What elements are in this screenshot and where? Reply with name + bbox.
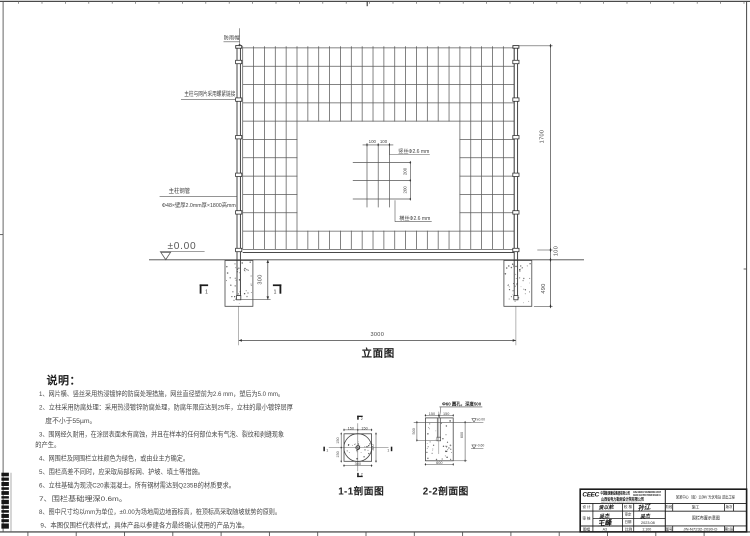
svg-text:1700: 1700 bbox=[540, 130, 546, 144]
svg-text:±0.00: ±0.00 bbox=[168, 241, 197, 252]
svg-text:150: 150 bbox=[429, 412, 435, 416]
svg-text:主柱与网片采用螺紧链接: 主柱与网片采用螺紧链接 bbox=[184, 90, 235, 98]
svg-text:4、网围栏及网围栏立柱颜色为绿色，或由业主方确定。: 4、网围栏及网围栏立柱颜色为绿色，或由业主方确定。 bbox=[39, 454, 189, 463]
svg-text:300: 300 bbox=[371, 444, 375, 450]
svg-text:中国能源建设集团有限公司: 中国能源建设集团有限公司 bbox=[601, 490, 631, 496]
svg-text:主柱钢管: 主柱钢管 bbox=[169, 187, 191, 195]
svg-text:某某中心（南）110kV 光伏电站 送出工程: 某某中心（南）110kV 光伏电站 送出工程 bbox=[676, 493, 735, 499]
svg-text:黄以航: 黄以航 bbox=[598, 503, 614, 511]
svg-text:审 核: 审 核 bbox=[582, 515, 591, 520]
svg-text:立面图: 立面图 bbox=[362, 347, 395, 360]
svg-text:7、围栏基础埋深0.6m。: 7、围栏基础埋深0.6m。 bbox=[39, 494, 127, 503]
svg-text:CEEC: CEEC bbox=[582, 491, 599, 498]
svg-text:第1张: 第1张 bbox=[725, 527, 734, 532]
svg-text:±0.00: ±0.00 bbox=[477, 417, 486, 421]
svg-text:竖丝Φ2.6 mm: 竖丝Φ2.6 mm bbox=[398, 147, 429, 155]
svg-text:图号: 图号 bbox=[666, 527, 673, 532]
svg-text:150: 150 bbox=[361, 426, 367, 430]
svg-text:3、围网经久耐用，在涂层表面未有腐蚀，并且在样本的任何部位未: 3、围网经久耐用，在涂层表面未有腐蚀，并且在样本的任何部位未有气泡、裂纹和剥缝现… bbox=[39, 429, 284, 438]
svg-text:1: 1 bbox=[387, 448, 389, 452]
svg-text:2、立柱采用防腐处理：采用热浸镀锌防腐处理，防腐年限应达到2: 2、立柱采用防腐处理：采用热浸镀锌防腐处理，防腐年限应达到25年，立柱的最小镀锌… bbox=[39, 403, 293, 412]
svg-text:A3: A3 bbox=[603, 528, 607, 532]
svg-text:200: 200 bbox=[403, 167, 408, 175]
svg-text:1: 1 bbox=[205, 290, 208, 296]
svg-text:200: 200 bbox=[403, 186, 408, 194]
svg-text:2: 2 bbox=[361, 473, 363, 477]
svg-text:600: 600 bbox=[460, 432, 464, 438]
svg-text:审定: 审定 bbox=[625, 512, 632, 517]
svg-text:1-1剖面图: 1-1剖面图 bbox=[338, 484, 384, 497]
svg-text:8、图中尺寸均以mm为单位，±0.00为场地周边地面标高，桩: 8、图中尺寸均以mm为单位，±0.00为场地周边地面标高，桩顶标高采取随坡就势的… bbox=[39, 507, 281, 516]
svg-text:阶段: 阶段 bbox=[666, 504, 673, 509]
svg-text:150: 150 bbox=[443, 412, 449, 416]
svg-text:490: 490 bbox=[541, 283, 547, 293]
svg-text:吴杰: 吴杰 bbox=[639, 512, 652, 520]
svg-text:度不小于55µm。: 度不小于55µm。 bbox=[45, 416, 96, 425]
svg-text:1、网片横、竖丝采用热浸镀锌的防腐处理措施，网丝直径塑前为2: 1、网片横、竖丝采用热浸镀锌的防腐处理措施，网丝直径塑前为2.6 mm，塑后为5… bbox=[39, 389, 284, 398]
svg-text:说明：: 说明： bbox=[47, 373, 82, 387]
svg-text:版次: 版次 bbox=[726, 504, 733, 509]
svg-text:6、立柱基础为现浇C20素混凝土。所有钢材需达到Q235B的: 6、立柱基础为现浇C20素混凝土。所有钢材需达到Q235B的材质要求。 bbox=[39, 480, 235, 489]
svg-text:设 计: 设 计 bbox=[582, 504, 591, 509]
svg-text:2-2剖面图: 2-2剖面图 bbox=[423, 485, 469, 498]
svg-text:3000: 3000 bbox=[370, 332, 384, 338]
svg-text:2: 2 bbox=[361, 417, 363, 421]
svg-text:校 核: 校 核 bbox=[624, 504, 633, 509]
svg-text:横丝Φ2.6 mm: 横丝Φ2.6 mm bbox=[399, 214, 430, 222]
svg-text:Φ48×壁厚2.0mm厚×1800高mm: Φ48×壁厚2.0mm厚×1800高mm bbox=[162, 201, 236, 209]
svg-text:100: 100 bbox=[553, 246, 559, 256]
svg-text:防雨帽: 防雨帽 bbox=[224, 34, 240, 42]
svg-text:1: 1 bbox=[326, 448, 328, 452]
svg-text:100: 100 bbox=[380, 139, 388, 144]
svg-text:600: 600 bbox=[436, 461, 442, 465]
svg-text:2023.08: 2023.08 bbox=[641, 521, 655, 525]
svg-text:300: 300 bbox=[355, 462, 361, 466]
svg-text:日期: 日期 bbox=[625, 519, 632, 524]
svg-text:的产生。: 的产生。 bbox=[35, 440, 60, 449]
svg-text:JN-N7232-2030-D: JN-N7232-2030-D bbox=[683, 528, 717, 532]
svg-text:100: 100 bbox=[369, 139, 377, 144]
svg-text:围栏布置示意图: 围栏布置示意图 bbox=[692, 515, 720, 522]
svg-text:150: 150 bbox=[336, 451, 340, 457]
svg-text:施工: 施工 bbox=[692, 504, 700, 509]
svg-text:9、本图仅围栏代表样式，具体产品以参建各方最终确认使用的产品: 9、本图仅围栏代表样式，具体产品以参建各方最终确认使用的产品为准。 bbox=[40, 521, 248, 530]
svg-text:1:100: 1:100 bbox=[642, 528, 651, 532]
svg-text:150: 150 bbox=[336, 437, 340, 443]
svg-text:比例: 比例 bbox=[625, 527, 633, 532]
svg-text:图幅: 图幅 bbox=[583, 527, 591, 532]
svg-text:500: 500 bbox=[412, 428, 416, 434]
svg-text:5、围栏高差不同时，应采取局部标网、护坡、填土等措施。: 5、围栏高差不同时，应采取局部标网、护坡、填土等措施。 bbox=[39, 467, 204, 476]
svg-text:1: 1 bbox=[274, 290, 277, 296]
svg-text:-0.60: -0.60 bbox=[477, 444, 485, 448]
svg-text:300: 300 bbox=[258, 274, 264, 284]
svg-text:SHANXI ELECTRIC POWER ENGINEER: SHANXI ELECTRIC POWER ENGINEERING & DESI… bbox=[601, 501, 642, 504]
svg-text:150: 150 bbox=[348, 426, 354, 430]
